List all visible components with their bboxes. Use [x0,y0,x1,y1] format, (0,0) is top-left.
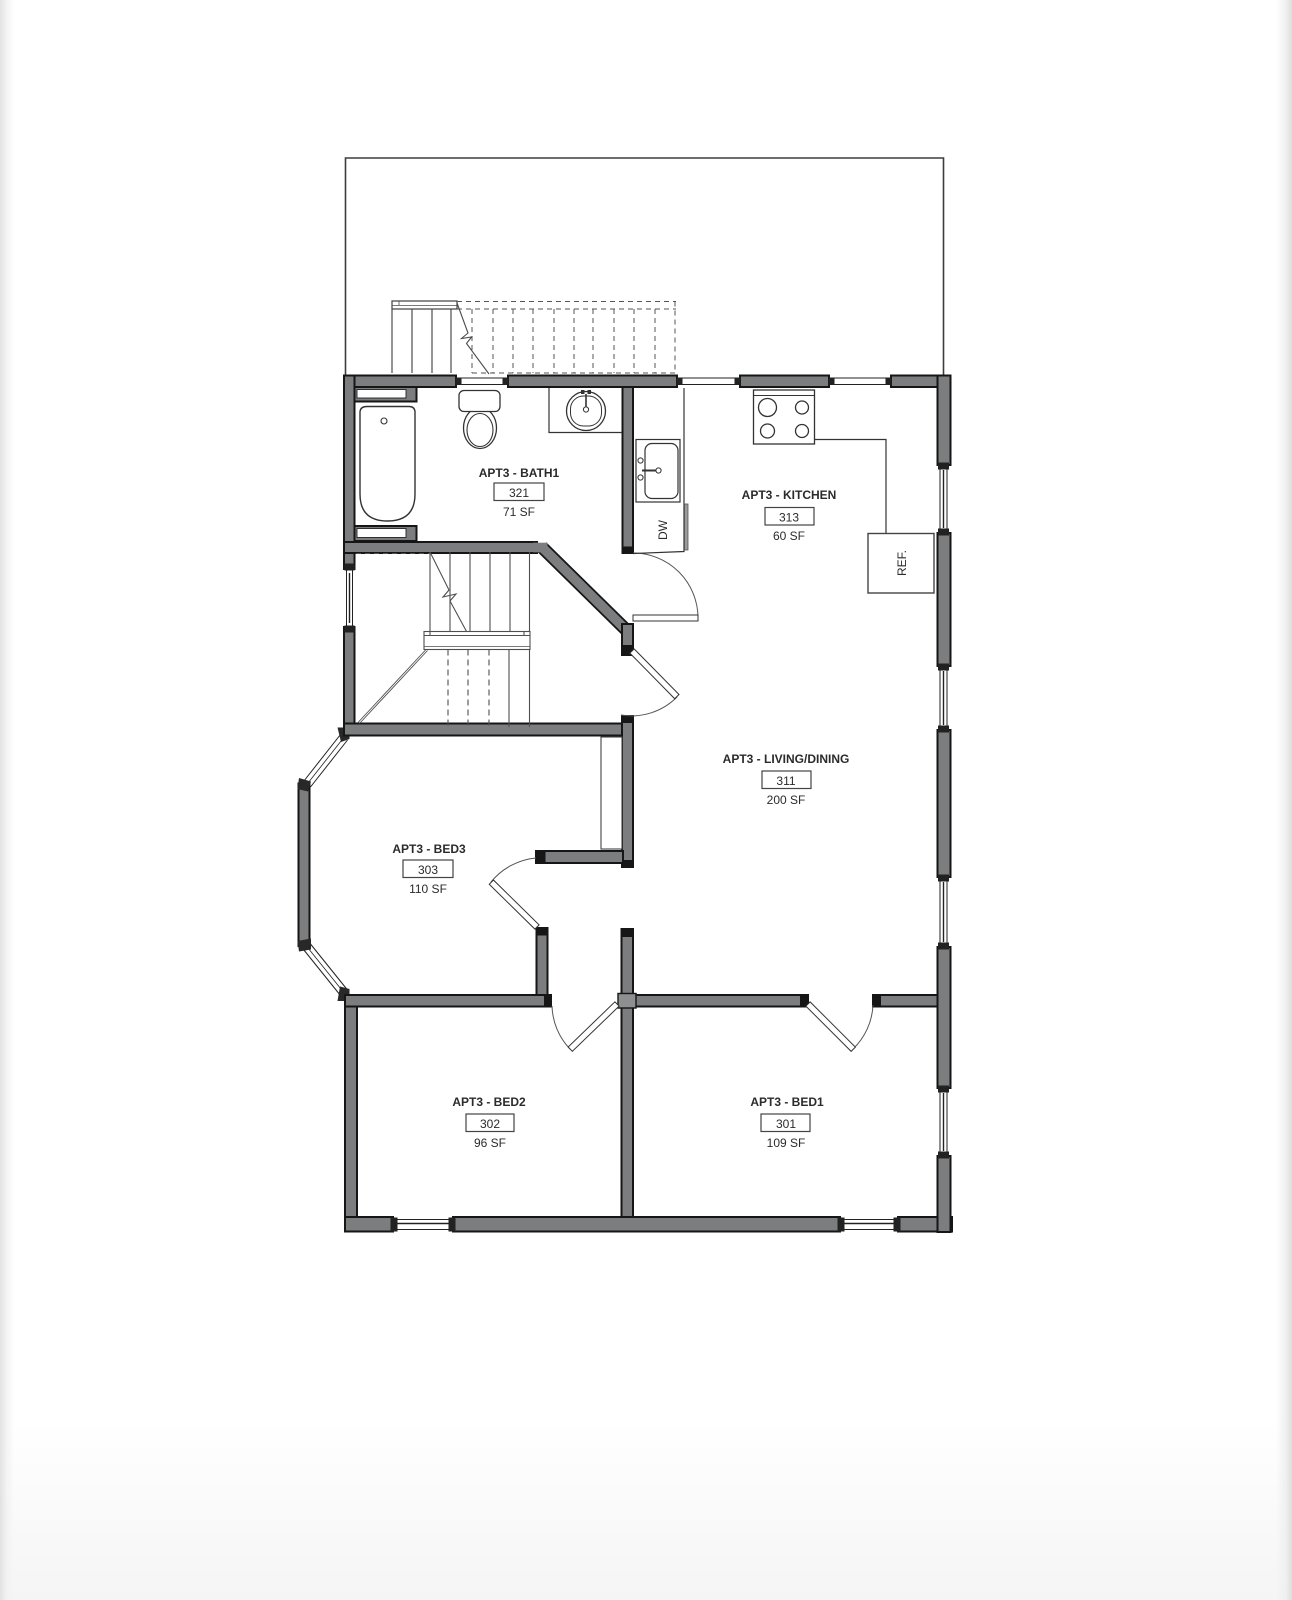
svg-text:REF.: REF. [895,550,909,576]
svg-text:303: 303 [418,863,438,877]
svg-text:313: 313 [779,511,799,525]
svg-text:321: 321 [509,486,529,500]
svg-text:200 SF: 200 SF [767,793,806,807]
svg-text:APT3 - KITCHEN: APT3 - KITCHEN [742,488,837,502]
svg-text:302: 302 [480,1117,500,1131]
svg-text:APT3 - BATH1: APT3 - BATH1 [479,466,560,480]
svg-text:301: 301 [776,1117,796,1131]
svg-text:DW: DW [656,519,670,540]
svg-text:311: 311 [776,774,795,788]
svg-text:96 SF: 96 SF [474,1136,506,1150]
svg-text:60 SF: 60 SF [773,529,805,543]
svg-text:APT3 - LIVING/DINING: APT3 - LIVING/DINING [723,752,850,766]
svg-text:APT3 - BED2: APT3 - BED2 [452,1095,526,1109]
svg-text:110 SF: 110 SF [409,882,447,896]
svg-text:APT3 - BED3: APT3 - BED3 [392,842,466,856]
svg-text:APT3 - BED1: APT3 - BED1 [750,1095,824,1109]
svg-text:109 SF: 109 SF [767,1136,806,1150]
svg-text:71 SF: 71 SF [503,505,535,519]
